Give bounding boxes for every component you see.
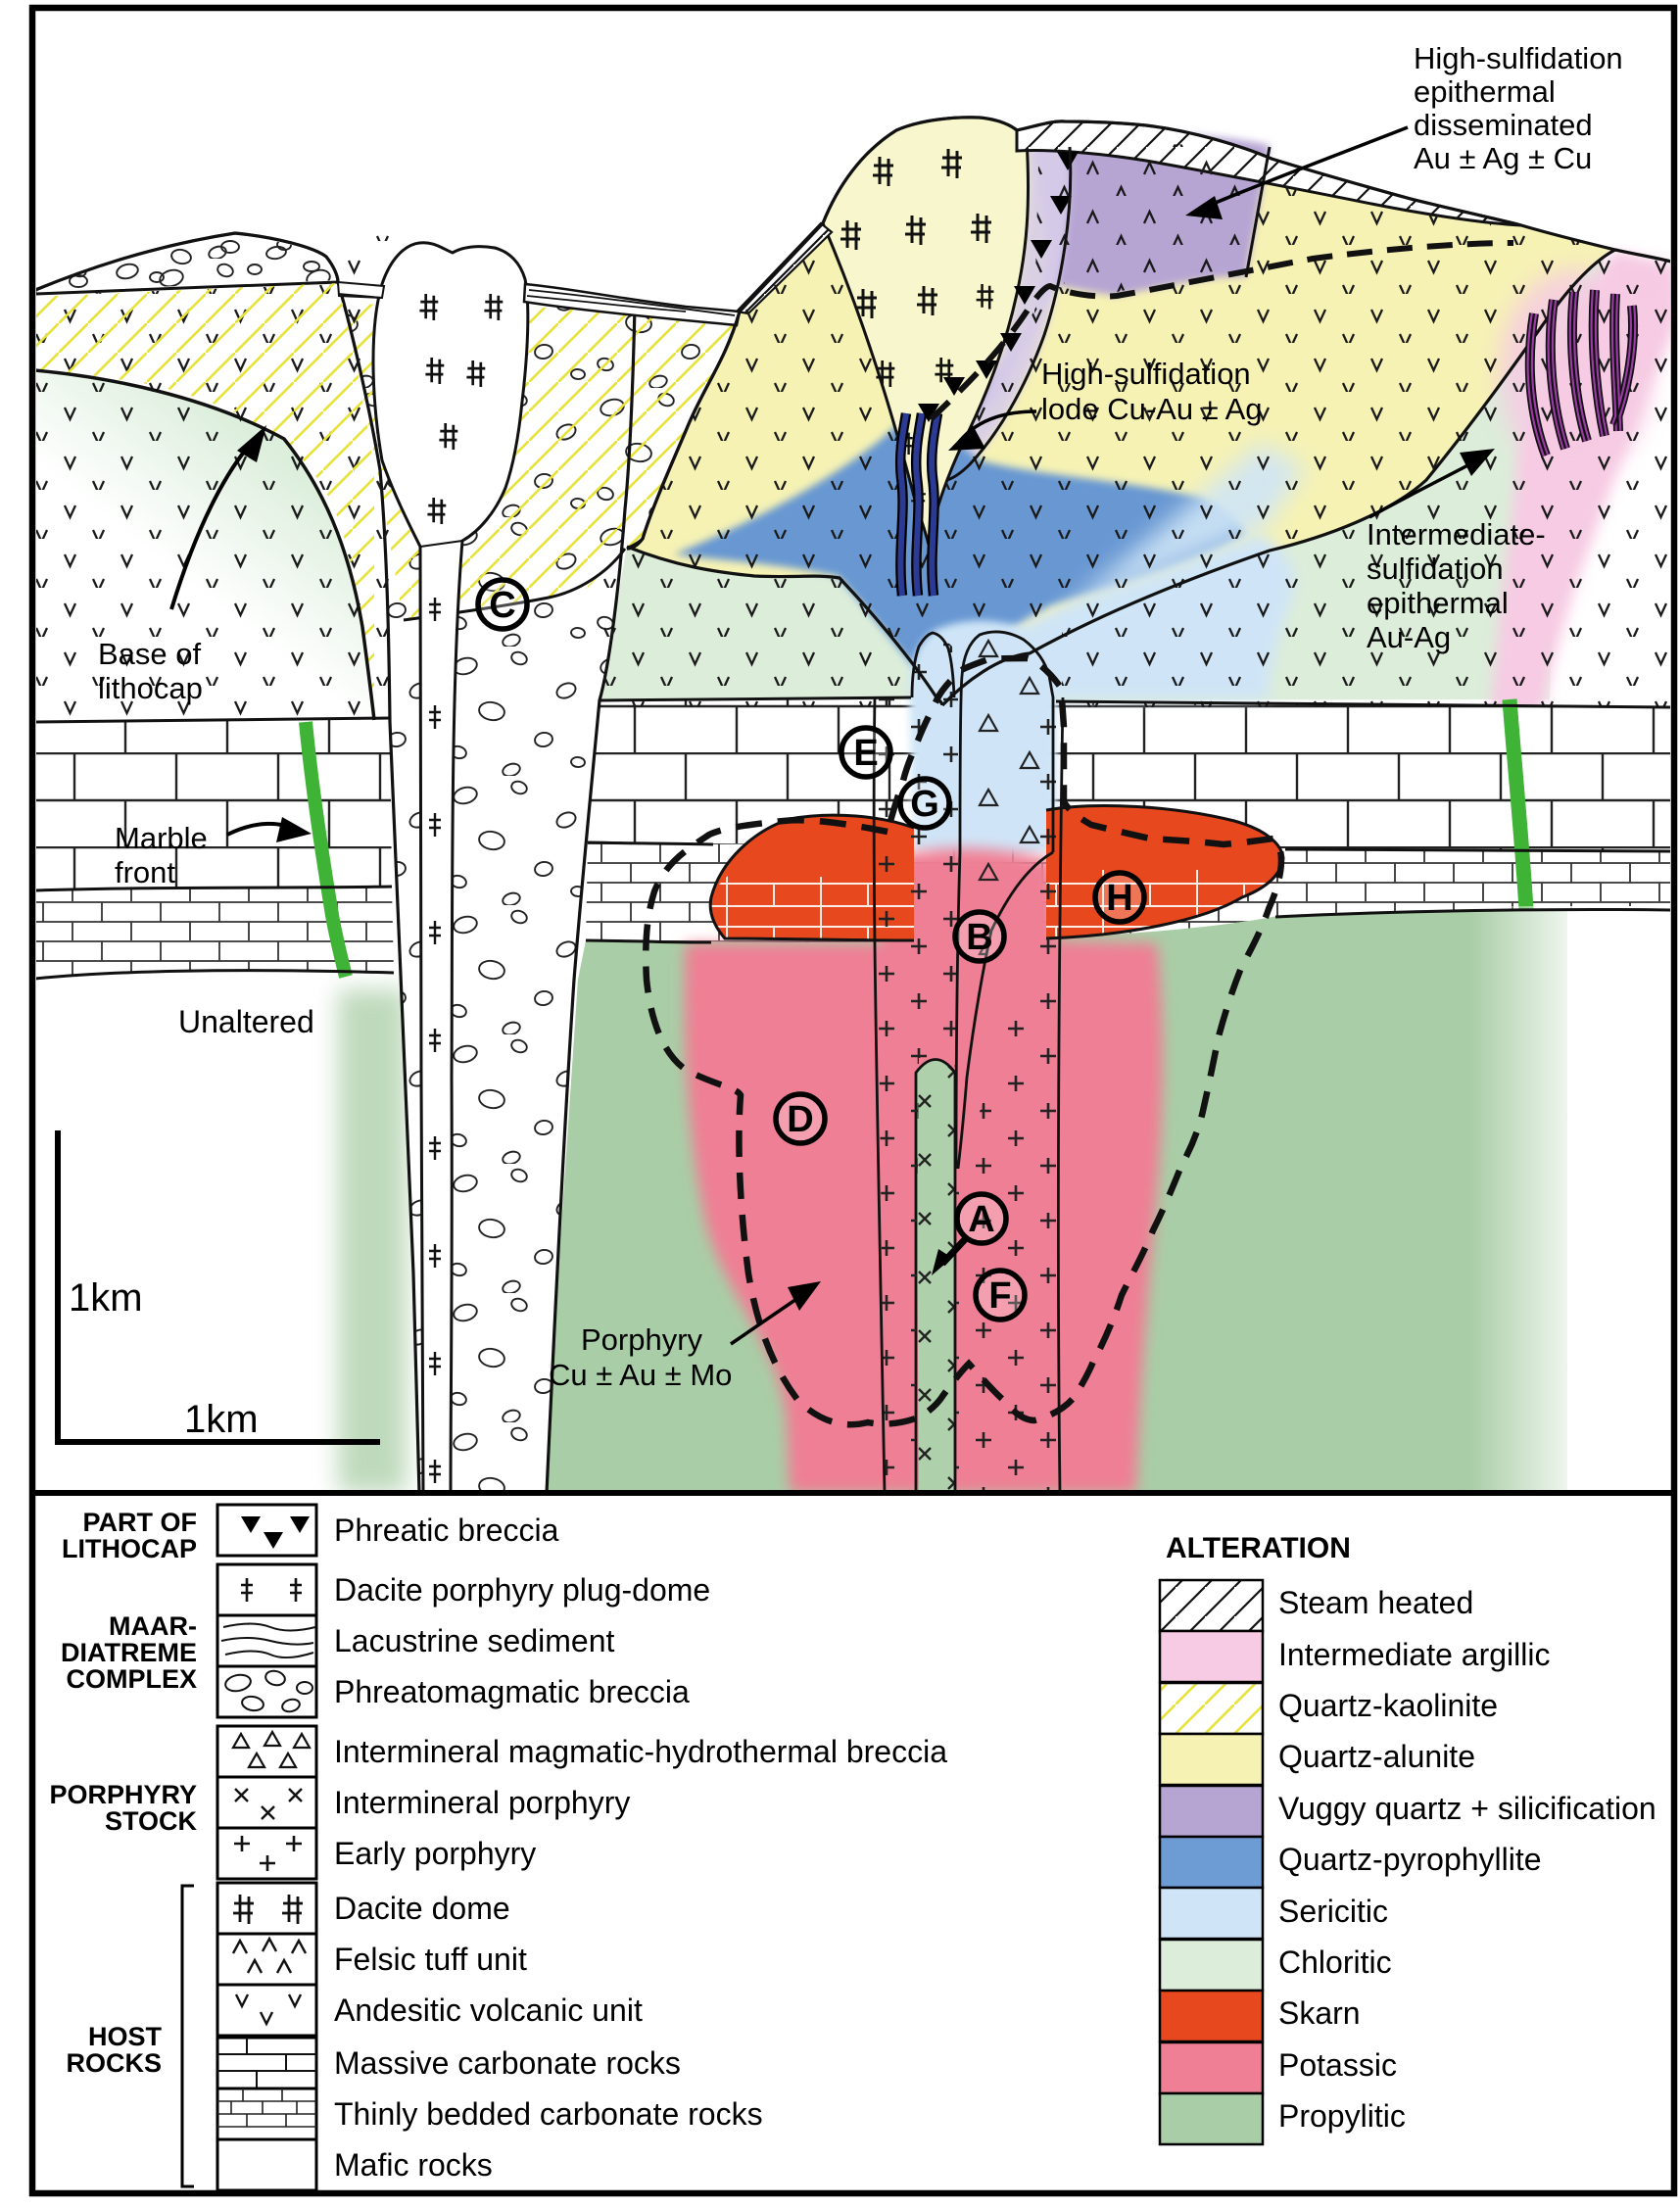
svg-text:HOST: HOST [88, 2022, 163, 2051]
svg-text:Au-Ag: Au-Ag [1367, 620, 1451, 654]
svg-text:Thinly bedded carbonate rocks: Thinly bedded carbonate rocks [334, 2096, 763, 2132]
svg-text:Andesitic volcanic unit: Andesitic volcanic unit [334, 1993, 643, 2028]
svg-text:MAAR-: MAAR- [109, 1611, 197, 1641]
svg-text:Base of: Base of [98, 637, 202, 671]
svg-text:Quartz-pyrophyllite: Quartz-pyrophyllite [1278, 1842, 1542, 1877]
svg-text:Potassic: Potassic [1278, 2047, 1397, 2083]
svg-text:Porphyry: Porphyry [581, 1322, 703, 1357]
svg-text:Early porphyry: Early porphyry [334, 1836, 536, 1871]
svg-text:ROCKS: ROCKS [66, 2048, 162, 2078]
svg-text:D: D [787, 1099, 813, 1140]
svg-text:Mafic rocks: Mafic rocks [334, 2147, 493, 2183]
svg-text:Vuggy quartz + silicification: Vuggy quartz + silicification [1278, 1791, 1656, 1826]
svg-text:Intermineral magmatic-hydrothe: Intermineral magmatic-hydrothermal brecc… [334, 1734, 947, 1769]
svg-text:G: G [910, 784, 939, 825]
svg-text:Propylitic: Propylitic [1278, 2098, 1406, 2134]
svg-text:epithermal: epithermal [1367, 586, 1509, 620]
svg-text:COMPLEX: COMPLEX [66, 1664, 197, 1694]
svg-text:A: A [968, 1199, 994, 1240]
svg-text:Quartz-alunite: Quartz-alunite [1278, 1739, 1475, 1774]
svg-text:Quartz-kaolinite: Quartz-kaolinite [1278, 1688, 1498, 1723]
svg-text:E: E [853, 733, 878, 774]
svg-text:Dacite dome: Dacite dome [334, 1891, 510, 1926]
svg-text:front: front [115, 855, 175, 889]
svg-text:Sericitic: Sericitic [1278, 1894, 1388, 1929]
svg-text:Steam heated: Steam heated [1278, 1585, 1473, 1620]
svg-text:ALTERATION: ALTERATION [1166, 1532, 1351, 1564]
svg-text:H: H [1106, 878, 1132, 919]
svg-text:Marble: Marble [115, 821, 208, 855]
svg-text:Au ± Ag ± Cu: Au ± Ag ± Cu [1414, 141, 1592, 175]
svg-text:Intermediate argillic: Intermediate argillic [1278, 1637, 1550, 1672]
svg-text:Cu ± Au ± Mo: Cu ± Au ± Mo [549, 1358, 732, 1392]
svg-text:Dacite porphyry plug-dome: Dacite porphyry plug-dome [334, 1572, 710, 1608]
svg-text:C: C [489, 585, 515, 626]
svg-text:Lacustrine sediment: Lacustrine sediment [334, 1623, 614, 1658]
svg-text:Skarn: Skarn [1278, 1995, 1361, 2031]
svg-text:Chloritic: Chloritic [1278, 1945, 1392, 1980]
svg-text:1km: 1km [184, 1398, 259, 1441]
svg-text:F: F [988, 1275, 1011, 1317]
svg-text:Phreatic breccia: Phreatic breccia [334, 1513, 559, 1548]
svg-text:epithermal: epithermal [1414, 74, 1556, 109]
svg-text:High-sulfidation: High-sulfidation [1414, 41, 1623, 75]
svg-text:1km: 1km [69, 1276, 143, 1320]
svg-text:lode Cu-Au ± Ag: lode Cu-Au ± Ag [1041, 392, 1263, 426]
svg-text:Felsic tuff unit: Felsic tuff unit [334, 1942, 527, 1977]
svg-text:B: B [966, 917, 992, 958]
svg-text:Intermediate-: Intermediate- [1367, 517, 1546, 552]
svg-text:Unaltered: Unaltered [178, 1004, 314, 1039]
svg-text:lithocap: lithocap [98, 671, 203, 705]
svg-text:Phreatomagmatic breccia: Phreatomagmatic breccia [334, 1674, 690, 1709]
svg-text:Intermineral porphyry: Intermineral porphyry [334, 1785, 630, 1820]
svg-text:PART OF: PART OF [83, 1508, 198, 1537]
svg-text:Massive carbonate rocks: Massive carbonate rocks [334, 2045, 681, 2081]
svg-text:STOCK: STOCK [105, 1806, 198, 1836]
svg-text:PORPHYRY: PORPHYRY [49, 1780, 197, 1809]
svg-text:High-sulfidation: High-sulfidation [1041, 357, 1251, 391]
svg-text:disseminated: disseminated [1414, 108, 1593, 142]
svg-text:LITHOCAP: LITHOCAP [62, 1534, 197, 1563]
svg-text:sulfidation: sulfidation [1367, 552, 1504, 586]
svg-text:DIATREME: DIATREME [61, 1638, 197, 1667]
